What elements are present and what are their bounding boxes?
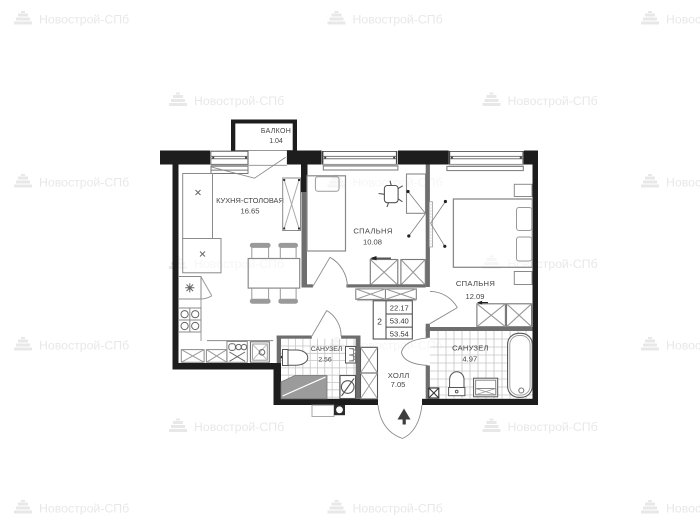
- svg-text:10.08: 10.08: [363, 237, 382, 246]
- svg-text:2.56: 2.56: [318, 357, 331, 364]
- svg-text:7.05: 7.05: [391, 380, 406, 389]
- svg-text:ХОЛЛ: ХОЛЛ: [388, 371, 410, 380]
- svg-text:САНУЗЕЛ: САНУЗЕЛ: [452, 344, 489, 353]
- svg-text:53.40: 53.40: [390, 317, 409, 326]
- svg-text:53.54: 53.54: [390, 329, 409, 338]
- svg-text:КУХНЯ-СТОЛОВАЯ: КУХНЯ-СТОЛОВАЯ: [216, 196, 284, 205]
- svg-text:4.97: 4.97: [462, 355, 477, 364]
- svg-text:12.09: 12.09: [465, 292, 484, 301]
- svg-text:1.04: 1.04: [269, 138, 283, 145]
- svg-text:16.65: 16.65: [240, 206, 259, 215]
- svg-text:22.17: 22.17: [390, 303, 409, 312]
- svg-text:СПАЛЬНЯ: СПАЛЬНЯ: [456, 279, 495, 288]
- svg-text:САНУЗЕЛ: САНУЗЕЛ: [311, 346, 342, 353]
- svg-text:СПАЛЬНЯ: СПАЛЬНЯ: [353, 227, 392, 236]
- svg-text:2: 2: [377, 317, 382, 327]
- svg-text:БАЛКОН: БАЛКОН: [261, 128, 291, 135]
